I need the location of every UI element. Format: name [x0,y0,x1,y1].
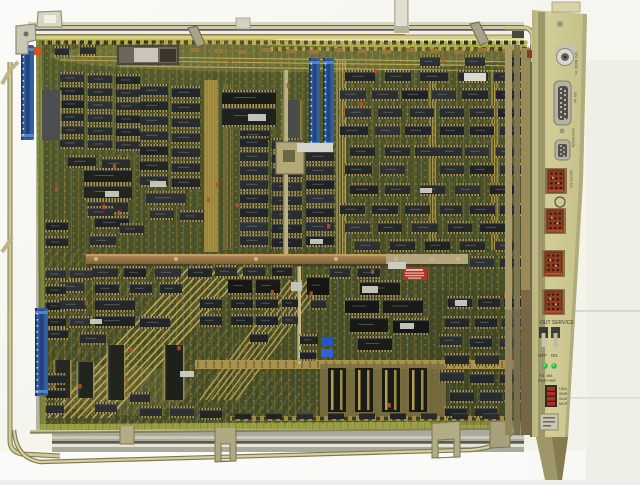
svg-text:263 PG 822: 263 PG 822 [569,170,573,188]
svg-text:UNI BASE Int: UNI BASE Int [574,52,578,74]
svg-text:OUT SERVICE: OUT SERVICE [540,320,574,326]
svg-text:PWR PWR: PWR PWR [538,379,556,383]
svg-text:P.S MM: P.S MM [539,374,552,378]
svg-text:SLM: SLM [559,397,567,401]
svg-text:DÜ Int: DÜ Int [573,92,577,103]
svg-text:SMS: SMS [559,392,568,396]
svg-text:V24 / PG634: V24 / PG634 [571,128,575,148]
svg-text:OFF ON: OFF ON [538,353,558,358]
svg-text:MCP: MCP [559,402,568,406]
svg-text:USA: USA [559,387,567,391]
